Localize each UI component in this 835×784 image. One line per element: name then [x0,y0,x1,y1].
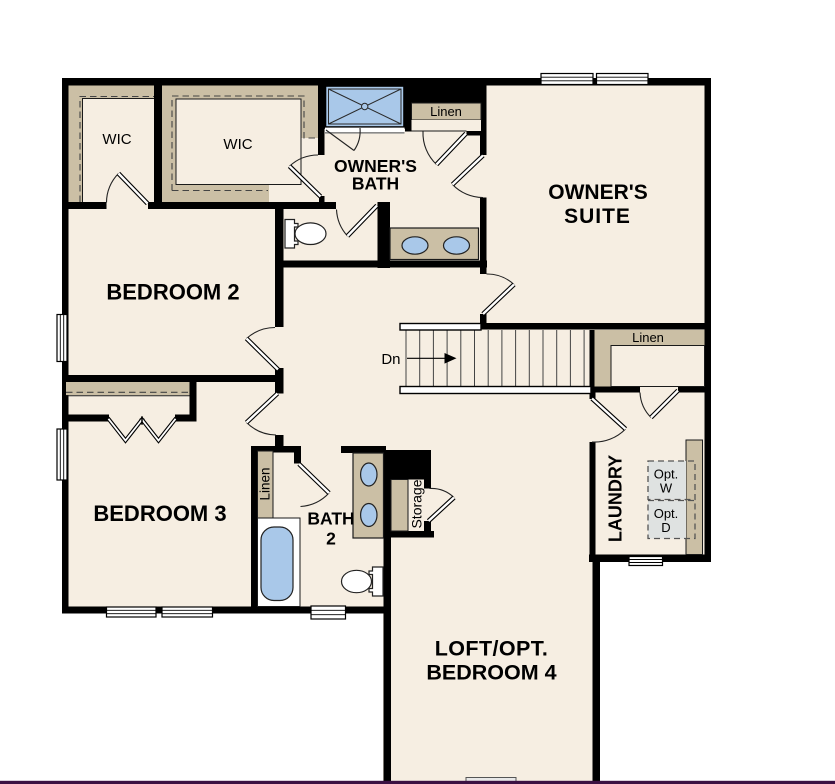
svg-text:BATH: BATH [307,509,354,529]
svg-text:Linen: Linen [632,330,664,345]
svg-text:BEDROOM 4: BEDROOM 4 [426,661,556,685]
svg-text:Linen: Linen [258,467,273,500]
svg-text:Linen: Linen [430,104,462,119]
svg-text:BEDROOM 2: BEDROOM 2 [106,280,239,305]
svg-text:Opt.: Opt. [654,506,679,521]
svg-text:2: 2 [326,529,336,549]
svg-text:OWNER'S: OWNER'S [548,181,648,204]
svg-text:LAUNDRY: LAUNDRY [606,455,626,542]
svg-text:Dn: Dn [381,351,400,368]
svg-text:LOFT/OPT.: LOFT/OPT. [435,637,548,661]
svg-text:Opt.: Opt. [654,467,679,482]
svg-text:WIC: WIC [102,131,131,148]
svg-text:Storage: Storage [409,479,425,528]
svg-text:D: D [661,520,670,535]
svg-text:WIC: WIC [223,136,252,153]
svg-text:SUITE: SUITE [564,205,631,228]
svg-text:BEDROOM 3: BEDROOM 3 [93,501,226,526]
svg-text:W: W [660,481,673,496]
svg-text:BATH: BATH [352,174,399,194]
